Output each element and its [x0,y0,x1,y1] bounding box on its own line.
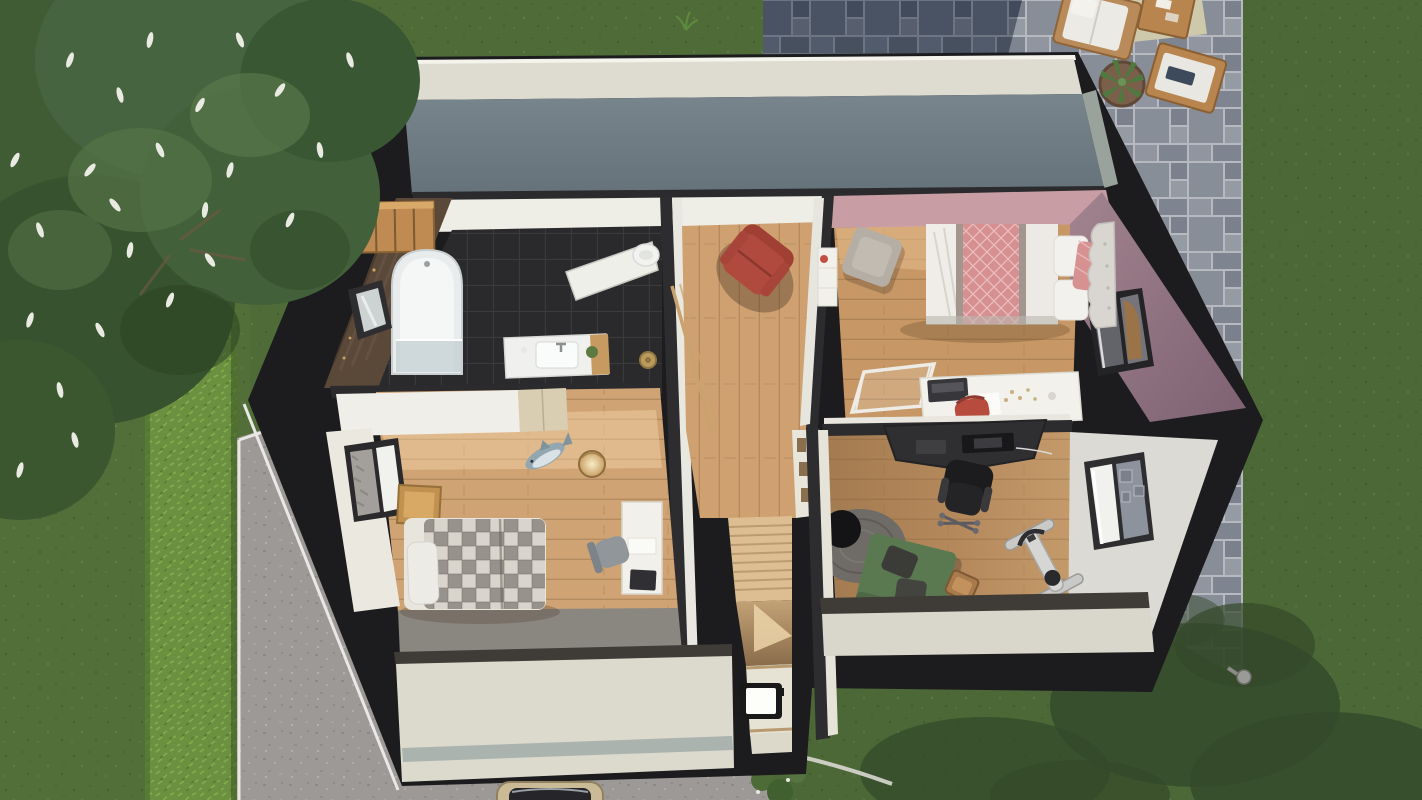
single-bed-plaid [400,518,560,624]
office-window [1084,452,1154,550]
house [244,52,1263,790]
parked-car [497,782,603,800]
entry-glass-door [738,683,784,719]
rattan-lamp [579,451,605,477]
red-vase [820,255,828,263]
toilet [633,244,659,266]
white-dresser [818,248,837,306]
floorplan-render: 3D top-down cutaway render of a house up… [0,0,1422,800]
vanity-plant [586,346,598,358]
north-face-pink [830,190,1114,228]
brass-plate [640,352,656,368]
south-wall-office-wing [822,608,1154,656]
agave-planter [1100,60,1144,106]
patio-shaded-pavers [763,0,1022,55]
bathtub [392,250,462,374]
vanity-sink [504,334,610,378]
pink-runner [963,224,1019,324]
headboard [1088,222,1116,328]
south-wall-left-wing [396,656,734,782]
scene-canvas [0,0,1422,800]
north-wall [393,55,1118,232]
plaid-duvet [424,519,545,609]
